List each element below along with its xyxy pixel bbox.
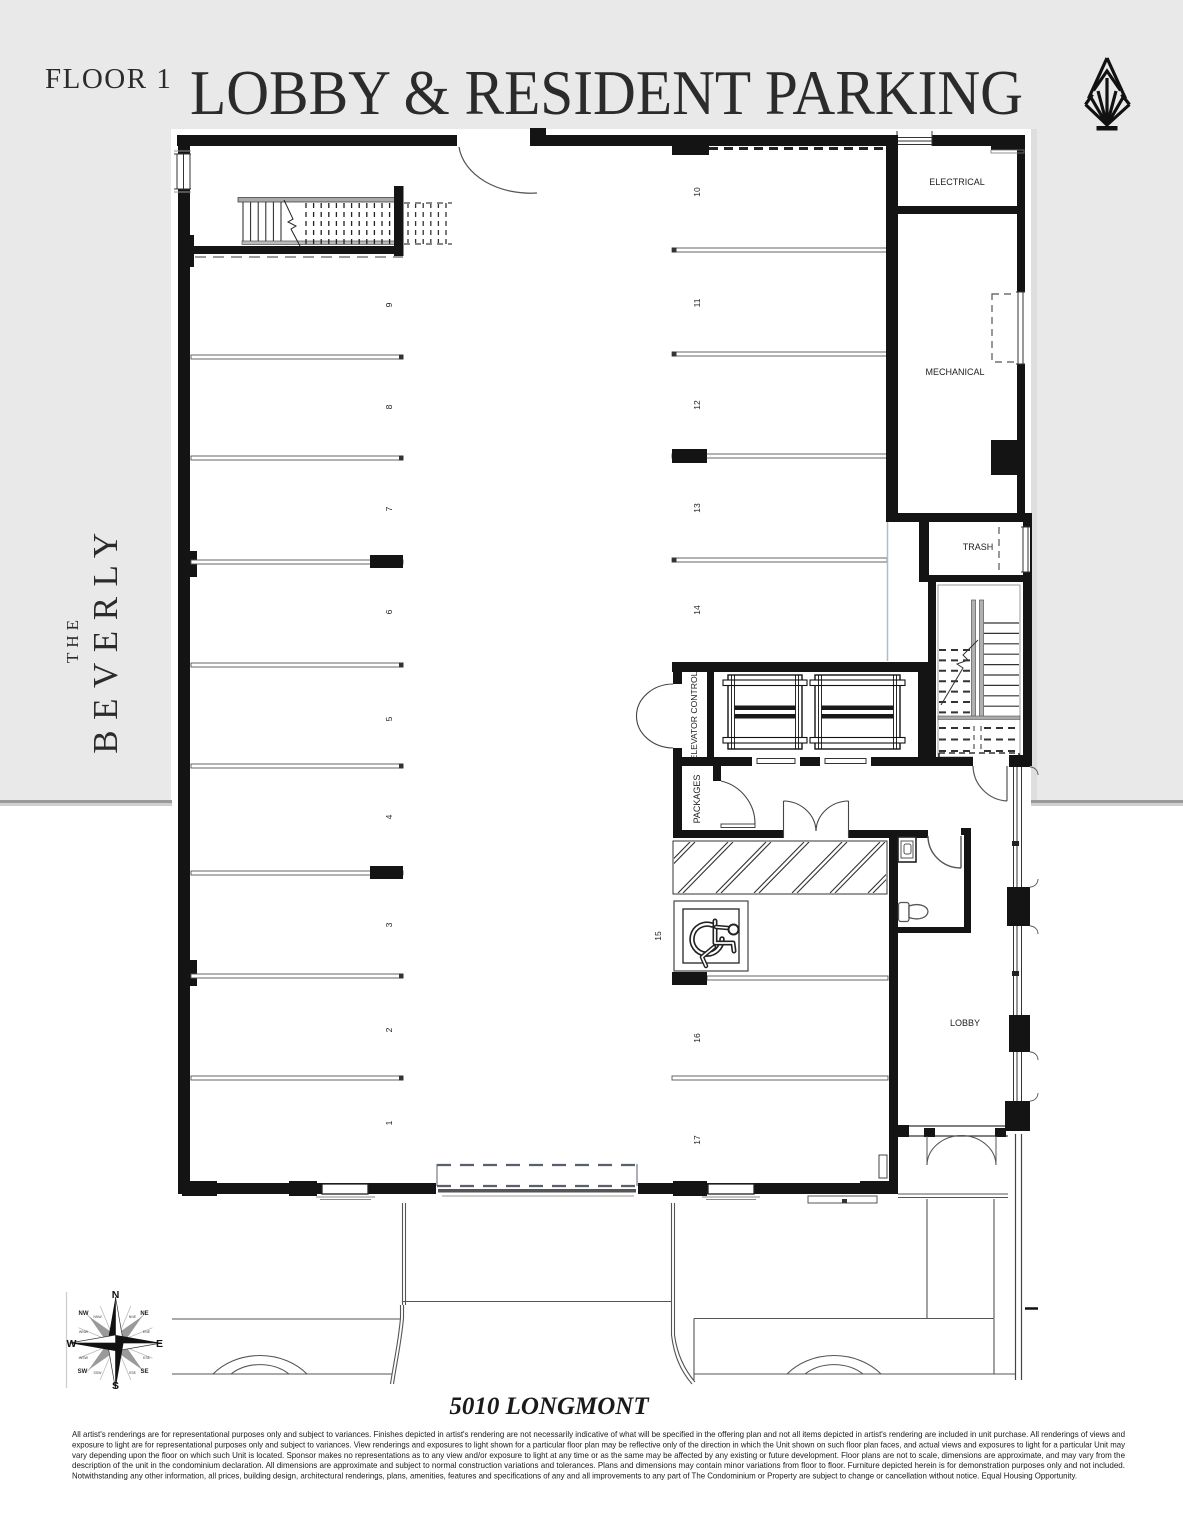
svg-text:PACKAGES: PACKAGES	[692, 775, 702, 824]
svg-text:4: 4	[384, 814, 394, 819]
svg-text:NW: NW	[79, 1311, 89, 1317]
svg-text:5010 LONGMONT: 5010 LONGMONT	[449, 1393, 650, 1420]
svg-text:1: 1	[384, 1120, 394, 1125]
svg-text:SSE: SSE	[129, 1371, 137, 1375]
svg-text:BEVERLY: BEVERLY	[86, 522, 125, 753]
svg-text:14: 14	[692, 605, 702, 615]
svg-text:9: 9	[384, 302, 394, 307]
svg-text:15: 15	[653, 931, 663, 941]
svg-text:ESE: ESE	[143, 1356, 151, 1360]
svg-text:3: 3	[384, 922, 394, 927]
svg-text:NE: NE	[140, 1311, 148, 1317]
svg-text:THE: THE	[63, 615, 82, 663]
svg-text:S: S	[112, 1380, 119, 1392]
svg-text:WSW: WSW	[79, 1356, 89, 1360]
svg-text:Notwithstanding any other info: Notwithstanding any other information, a…	[72, 1472, 1077, 1481]
svg-text:2: 2	[384, 1027, 394, 1032]
svg-text:SE: SE	[140, 1369, 148, 1375]
svg-text:11: 11	[692, 298, 702, 307]
svg-text:LOBBY: LOBBY	[950, 1018, 980, 1028]
svg-text:16: 16	[692, 1033, 702, 1043]
svg-text:W: W	[67, 1338, 77, 1350]
svg-text:TRASH: TRASH	[963, 542, 994, 552]
svg-text:NNE: NNE	[129, 1315, 137, 1319]
svg-text:All artist's renderings are fo: All artist's renderings are for represen…	[72, 1430, 1125, 1439]
svg-text:description of the unit in the: description of the unit in the condomini…	[72, 1461, 1125, 1470]
svg-text:NNW: NNW	[93, 1315, 102, 1319]
svg-text:10: 10	[692, 187, 702, 197]
svg-text:7: 7	[384, 506, 394, 511]
svg-text:8: 8	[384, 404, 394, 409]
svg-text:ELECTRICAL: ELECTRICAL	[929, 177, 985, 187]
svg-text:FLOOR 1: FLOOR 1	[45, 63, 172, 95]
svg-text:SSW: SSW	[94, 1371, 103, 1375]
svg-text:5: 5	[384, 716, 394, 721]
svg-text:WNW: WNW	[79, 1330, 89, 1334]
svg-text:MECHANICAL: MECHANICAL	[925, 367, 984, 377]
svg-text:13: 13	[692, 503, 702, 513]
svg-text:N: N	[112, 1289, 120, 1301]
svg-text:E: E	[156, 1338, 163, 1350]
svg-text:exposure to light are for repr: exposure to light are for representation…	[72, 1440, 1126, 1449]
svg-text:6: 6	[384, 609, 394, 614]
svg-text:LOBBY & RESIDENT PARKING: LOBBY & RESIDENT PARKING	[190, 57, 1023, 128]
svg-text:ELEVATOR CONTROL: ELEVATOR CONTROL	[689, 671, 699, 760]
svg-text:ENE: ENE	[143, 1330, 151, 1334]
svg-text:12: 12	[692, 400, 702, 410]
svg-text:SW: SW	[78, 1369, 88, 1375]
svg-text:vary depending upon the floor: vary depending upon the floor on which s…	[72, 1451, 1125, 1460]
svg-text:17: 17	[692, 1135, 702, 1145]
